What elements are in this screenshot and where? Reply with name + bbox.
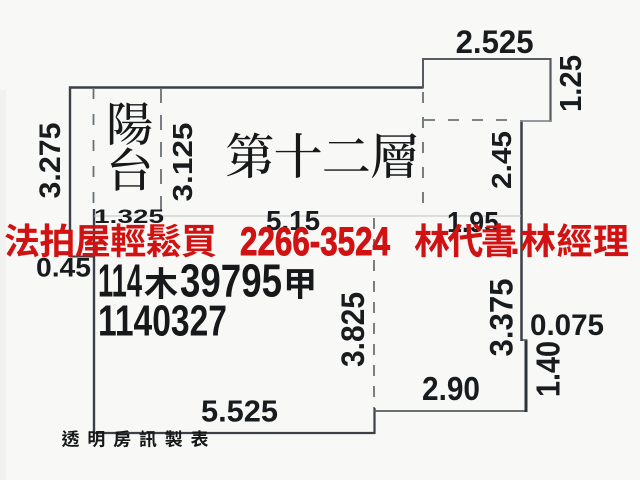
svg-text:1140327: 1140327: [98, 297, 227, 346]
svg-text:5.525: 5.525: [201, 394, 278, 429]
svg-text:2.45: 2.45: [486, 131, 517, 189]
svg-text:0.075: 0.075: [530, 309, 604, 342]
svg-text:.: .: [510, 221, 520, 262]
svg-text:2.90: 2.90: [422, 370, 480, 407]
svg-text:1.40: 1.40: [530, 341, 567, 397]
svg-text:2.525: 2.525: [456, 24, 534, 60]
svg-text:1.25: 1.25: [553, 55, 588, 112]
svg-text:3.125: 3.125: [167, 123, 198, 202]
svg-text:3.275: 3.275: [34, 123, 67, 199]
svg-text:3.375: 3.375: [484, 279, 520, 357]
svg-text:3.825: 3.825: [335, 292, 371, 367]
